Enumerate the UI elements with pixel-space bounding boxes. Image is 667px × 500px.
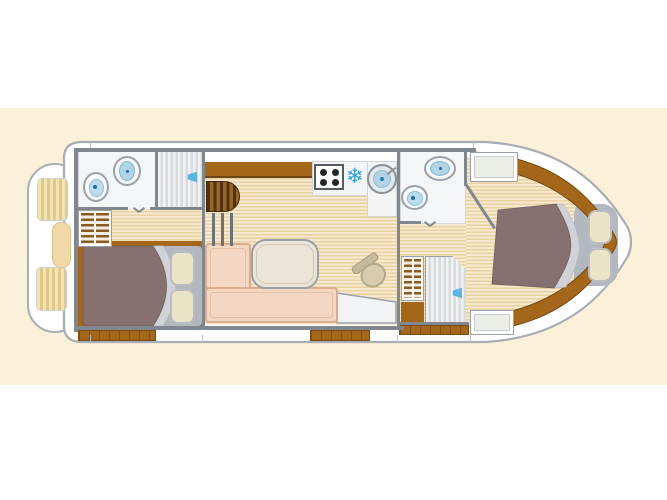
stove-icon bbox=[314, 164, 344, 190]
handrail-post bbox=[221, 213, 224, 246]
fwd-toilet-icon bbox=[401, 185, 428, 210]
fwd-deck-wood bbox=[399, 325, 469, 335]
deck-divider bbox=[90, 335, 91, 342]
aft-wardrobe bbox=[78, 210, 112, 247]
wall-fwd-bath-right bbox=[464, 149, 467, 186]
fwd-shelf-unit bbox=[401, 256, 424, 301]
fwd-bed-pillow-1 bbox=[588, 210, 612, 244]
freezer-icon: ❄ bbox=[346, 166, 364, 187]
fwd-bed-pillow-2 bbox=[588, 248, 612, 282]
fwd-bed-duvet bbox=[492, 204, 571, 288]
wall-fwd-shower-bottom bbox=[399, 322, 469, 325]
saloon-sofa-front bbox=[205, 287, 338, 323]
wall-aft-bath-1 bbox=[76, 207, 128, 210]
wall-bottom bbox=[74, 326, 404, 330]
deck-divider bbox=[470, 335, 471, 342]
aft-bed-pillow-1 bbox=[170, 251, 195, 286]
wall-bath-shower-divider bbox=[155, 149, 158, 210]
fwd-wood-floor-patch bbox=[401, 302, 424, 322]
washbasin-icon bbox=[113, 156, 141, 186]
fwd-wardrobe-top bbox=[470, 152, 518, 182]
galley-sink-icon bbox=[367, 164, 397, 194]
wall-saloon-right bbox=[397, 149, 400, 329]
door-mark-fwd bbox=[424, 220, 434, 230]
handrail-post bbox=[230, 213, 233, 246]
boat-floorplan: ❄ bbox=[0, 0, 667, 500]
wall-saloon-left bbox=[202, 149, 205, 329]
bow-trim-layer bbox=[0, 0, 667, 500]
fwd-washbasin-icon bbox=[424, 156, 456, 181]
handrail-post bbox=[212, 213, 215, 246]
wall-top bbox=[74, 148, 476, 152]
saloon-table bbox=[251, 239, 319, 289]
wall-aft-bath-2 bbox=[150, 207, 204, 210]
wall-left bbox=[74, 148, 78, 332]
fwd-wardrobe-bottom bbox=[470, 310, 514, 335]
toilet-icon bbox=[83, 172, 109, 202]
deck-divider bbox=[397, 335, 398, 342]
side-deck-wood-mid bbox=[310, 330, 370, 341]
companionway-steps bbox=[206, 181, 240, 212]
door-mark-aft bbox=[133, 206, 143, 216]
aft-bed-pillow-2 bbox=[170, 289, 195, 324]
deck-divider bbox=[202, 335, 203, 342]
wall-fwd-bath-bottom bbox=[399, 221, 421, 224]
